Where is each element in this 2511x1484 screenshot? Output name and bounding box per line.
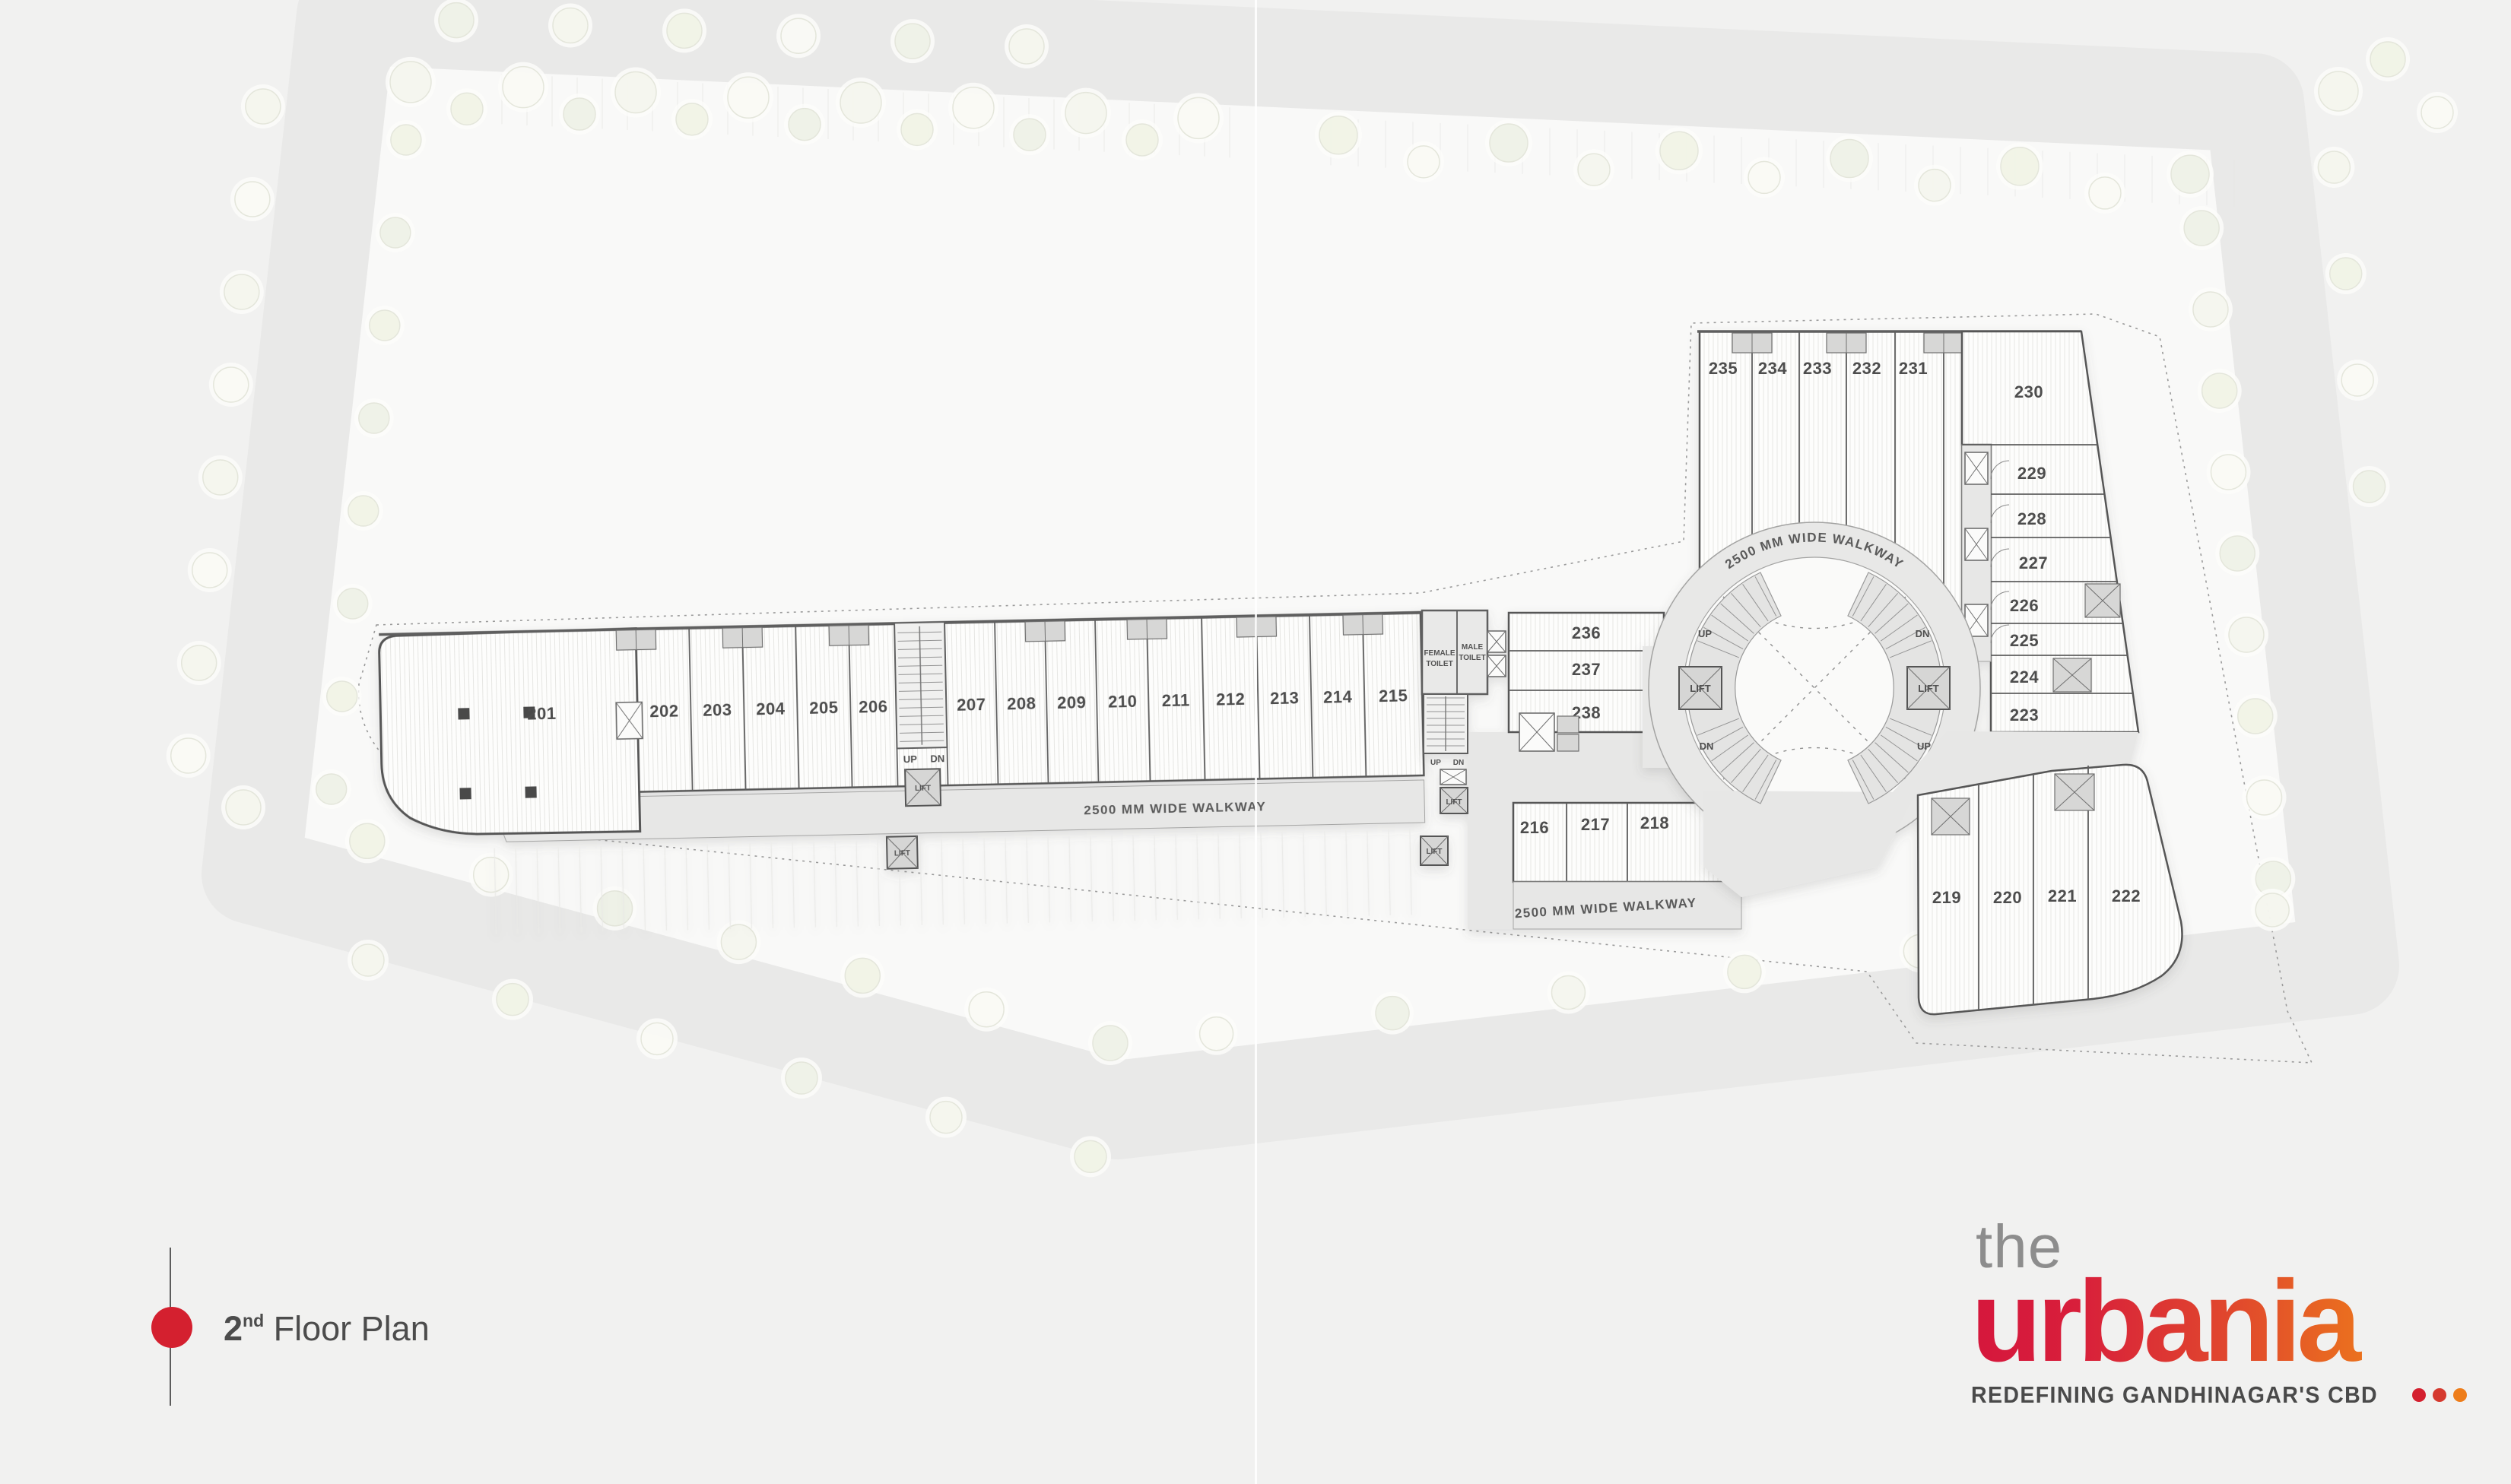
door [1557, 734, 1579, 751]
tree [969, 992, 1004, 1027]
unit-label: 212 [1216, 690, 1246, 709]
tree [840, 82, 881, 123]
tree [845, 958, 880, 993]
unit-label: 220 [1993, 888, 2022, 907]
floor-label: Floor Plan [264, 1309, 430, 1348]
tree [2255, 893, 2289, 927]
walkway-mid-vertical [1468, 777, 1515, 929]
tree [2229, 617, 2264, 652]
unit-label: 201 [527, 704, 557, 724]
unit-label: 208 [1007, 694, 1036, 714]
tree [1551, 976, 1585, 1010]
tree [226, 790, 261, 825]
tree [224, 274, 259, 309]
entrance-doors [1732, 333, 1963, 353]
stair-dn-label: DN [1453, 759, 1464, 767]
unit-label: 213 [1270, 688, 1300, 708]
lift-label: LIFT [915, 785, 931, 793]
stair-up-label: UP [1917, 740, 1931, 752]
unit-label: 235 [1709, 359, 1738, 378]
unit-label: 230 [2014, 382, 2043, 401]
tree [2341, 364, 2373, 396]
unit-label: 233 [1803, 359, 1832, 378]
unit-label: 217 [1581, 815, 1610, 834]
duct-shafts [1965, 452, 1988, 636]
door [1557, 716, 1579, 733]
unit-label: 224 [2010, 667, 2039, 687]
male-toilet-label: TOILET [1459, 654, 1485, 662]
tree [235, 182, 270, 217]
unit-label: 215 [1379, 686, 1408, 706]
unit-label: 228 [2017, 509, 2046, 528]
tree [350, 823, 385, 858]
dot-orange [2453, 1388, 2467, 1402]
tree [474, 858, 509, 893]
female-toilet-label: FEMALE [1424, 649, 1455, 658]
tree [1376, 997, 1409, 1030]
dot-red [2412, 1388, 2426, 1402]
tree [2354, 471, 2386, 503]
male-toilet-label: MALE [1462, 643, 1484, 652]
tree [171, 738, 206, 773]
unit-label: 218 [1640, 813, 1669, 832]
tree [1126, 124, 1158, 156]
unit-label: 202 [649, 701, 679, 721]
tree [380, 217, 411, 248]
brochure-fold-line [1255, 0, 1257, 1484]
tree [1578, 154, 1610, 185]
tree [1014, 119, 1046, 151]
logo-brand: urbania [1971, 1274, 2458, 1369]
legend-red-dot [151, 1307, 192, 1348]
lift-label: LIFT [1690, 683, 1710, 694]
tree [1919, 170, 1951, 201]
unit-label: 227 [2019, 553, 2048, 572]
page-title: 2nd Floor Plan [224, 1309, 430, 1349]
tree [316, 774, 347, 804]
tree [2370, 42, 2405, 77]
tree [2247, 780, 2282, 815]
tree [192, 553, 227, 588]
tree [721, 924, 756, 959]
tree [2319, 71, 2358, 111]
tree [930, 1102, 962, 1134]
lift-label: LIFT [1446, 798, 1462, 807]
unit-label: 237 [1572, 660, 1601, 679]
logo-tagline: REDEFINING GANDHINAGAR'S CBD [1971, 1381, 2378, 1409]
unit-label: 216 [1520, 818, 1549, 837]
tree [246, 89, 281, 124]
tree [728, 77, 769, 118]
tree [1009, 29, 1044, 64]
tree [1093, 1026, 1128, 1061]
tree [497, 984, 529, 1016]
lift-label: LIFT [894, 849, 910, 858]
tree [901, 113, 933, 145]
tree [338, 588, 368, 619]
tree [563, 98, 595, 130]
tree [2184, 211, 2219, 246]
unit-label: 221 [2048, 886, 2077, 905]
tree [439, 3, 474, 38]
tree [1408, 146, 1440, 178]
unit-label: 222 [2112, 886, 2141, 905]
stair-dn-label: DN [1916, 628, 1930, 639]
tree [1748, 161, 1780, 193]
tree [359, 403, 389, 433]
tree [953, 87, 994, 128]
unit-label: 214 [1323, 687, 1353, 707]
tree [214, 367, 249, 402]
unit-label: 225 [2010, 631, 2039, 650]
stair-dn-label: DN [1700, 740, 1714, 752]
tree [1319, 116, 1357, 154]
tree [1065, 93, 1106, 134]
stair-up-label: UP [903, 753, 918, 765]
tree [667, 13, 702, 48]
tree [1660, 132, 1698, 170]
unit-label: 204 [756, 699, 786, 719]
tree [203, 460, 238, 495]
unit-label: 236 [1572, 623, 1601, 642]
tree [2171, 155, 2209, 193]
tree [615, 71, 656, 113]
unit-label: 231 [1899, 359, 1928, 378]
tree [1075, 1140, 1106, 1172]
dot-red2 [2433, 1388, 2446, 1402]
unit-label: 219 [1932, 888, 1961, 907]
floor-suffix: nd [243, 1311, 264, 1330]
unit-label: 226 [2010, 596, 2039, 615]
tree [789, 109, 821, 141]
unit-label: 223 [2010, 706, 2039, 725]
tree [676, 103, 708, 135]
unit-label: 211 [1162, 690, 1191, 710]
tree [2220, 536, 2255, 571]
tree [1490, 124, 1528, 162]
tree [641, 1023, 673, 1054]
tree [503, 67, 544, 108]
unit-label: 205 [809, 698, 839, 718]
unit-label: 207 [957, 695, 986, 715]
lift-label: LIFT [1426, 848, 1442, 856]
tree [895, 24, 930, 59]
tree [327, 681, 357, 712]
stair-up-label: UP [1430, 759, 1441, 767]
unit-label: 206 [859, 697, 888, 717]
unit-label: 203 [703, 700, 732, 720]
logo-dots [2412, 1388, 2467, 1402]
tree [2193, 292, 2228, 327]
tree [2238, 699, 2273, 734]
brand-logo: the urbania REDEFINING GANDHINAGAR'S CBD [1971, 1219, 2458, 1409]
tree [451, 93, 483, 125]
unit-label: 234 [1758, 359, 1787, 378]
page: UP DN LIFT LIFT 201 202 203 204 205 [0, 0, 2511, 1484]
tree [2202, 373, 2237, 408]
unit-label: 209 [1057, 693, 1087, 712]
female-toilet-label: TOILET [1426, 660, 1452, 668]
tree [786, 1062, 817, 1094]
tree [348, 496, 379, 526]
tree [553, 8, 588, 43]
tree [2001, 147, 2039, 185]
floor-number: 2 [224, 1309, 243, 1348]
unit-label: 229 [2017, 464, 2046, 483]
tree [2421, 97, 2453, 128]
tree [1830, 140, 1868, 178]
stair-dn-label: DN [930, 753, 944, 764]
tree [352, 944, 384, 976]
tree [370, 310, 400, 341]
tree [2318, 151, 2350, 183]
tree [391, 125, 421, 155]
tree [1200, 1017, 1233, 1051]
tree [182, 645, 217, 680]
unit-label: 210 [1108, 692, 1138, 712]
tree [390, 62, 431, 103]
tree [2211, 455, 2246, 490]
unit-label: 232 [1852, 359, 1881, 378]
tree [2089, 177, 2121, 209]
tree [1728, 955, 1761, 988]
lift-label: LIFT [1918, 683, 1938, 694]
stair-up-label: UP [1698, 628, 1712, 639]
unit-201-area [379, 629, 640, 837]
tree [1178, 97, 1219, 138]
tree [2330, 258, 2362, 290]
tree [781, 18, 816, 53]
